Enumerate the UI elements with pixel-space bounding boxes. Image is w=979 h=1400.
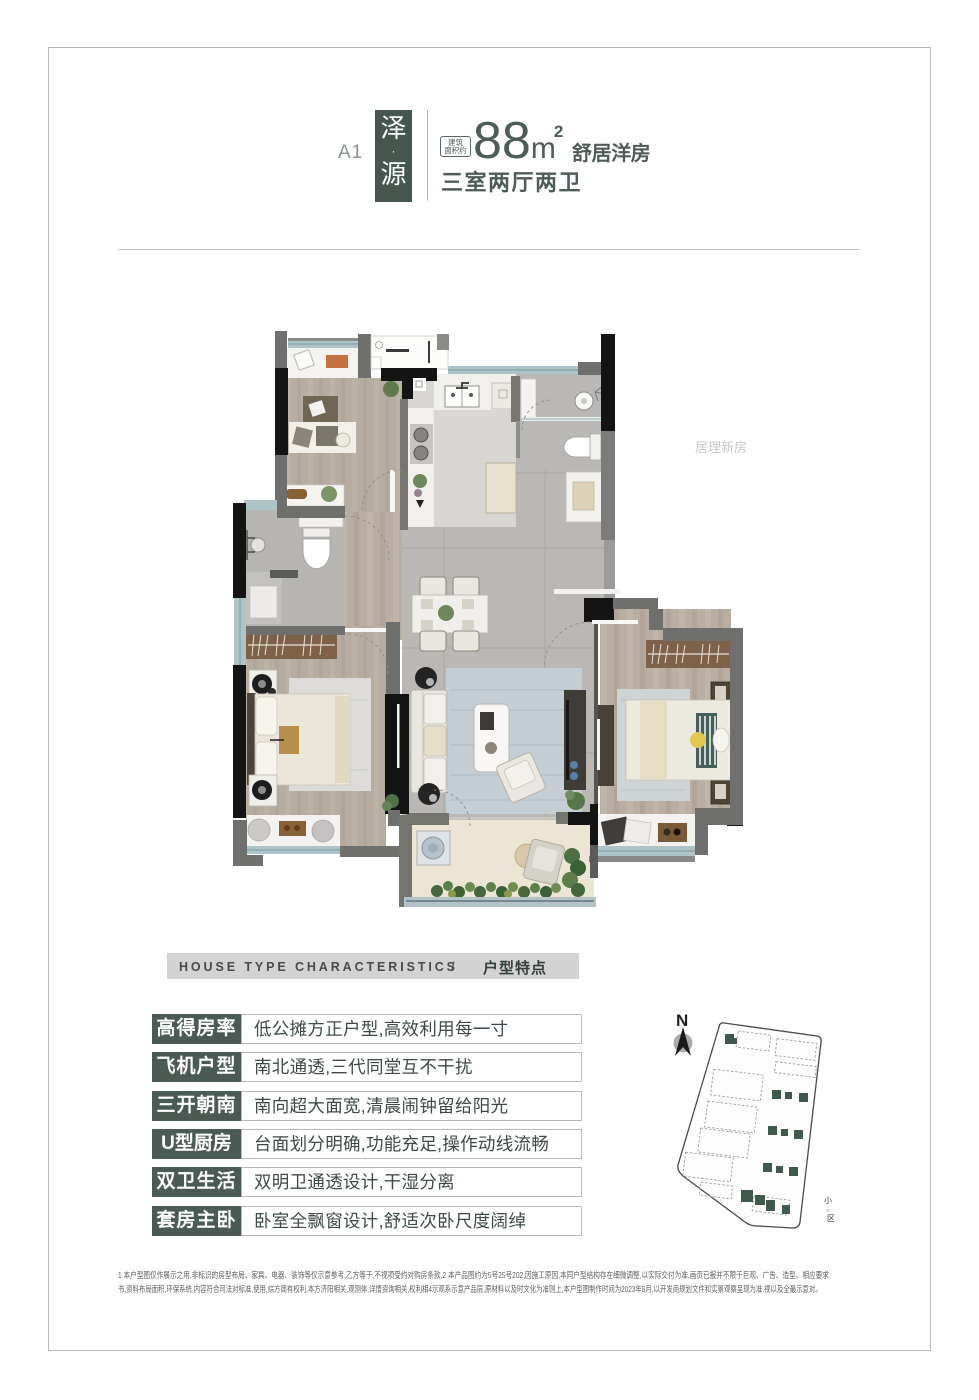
svg-text:区: 区 [827, 1214, 835, 1223]
svg-text:小: 小 [824, 1196, 832, 1205]
svg-text:居理新房: 居理新房 [695, 440, 747, 455]
svg-text:N: N [676, 1011, 688, 1030]
